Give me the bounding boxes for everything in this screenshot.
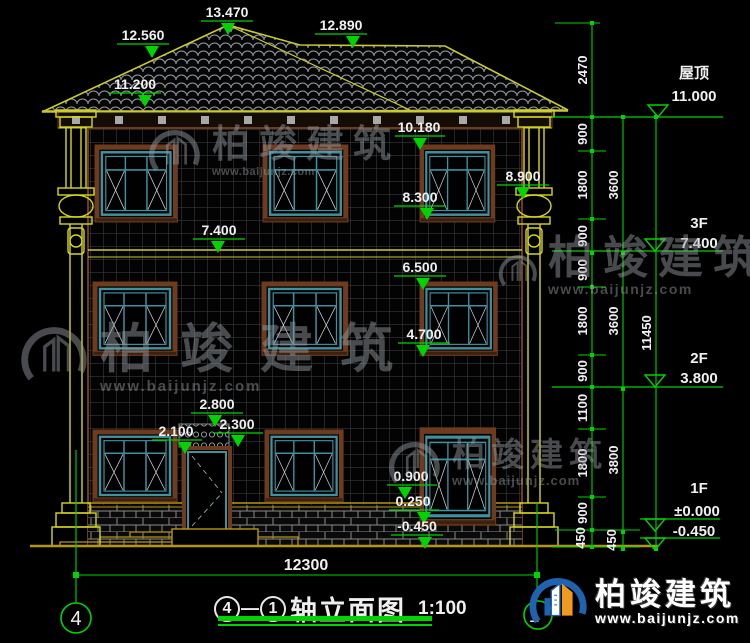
svg-text:12.560: 12.560 xyxy=(122,27,165,43)
level-marker: 12.890 xyxy=(315,17,367,48)
svg-text:3600: 3600 xyxy=(606,307,621,336)
svg-text:4: 4 xyxy=(70,608,81,630)
svg-text:1800: 1800 xyxy=(575,307,590,336)
brand-logo-icon xyxy=(528,570,590,634)
door-stoop xyxy=(172,529,258,546)
svg-text:2.800: 2.800 xyxy=(199,396,234,412)
chain-inner-labels: 2470 900 1800 900 900 1800 900 1100 1800… xyxy=(573,56,590,549)
svg-text:900: 900 xyxy=(575,225,590,247)
level-marker: 12.560 xyxy=(117,27,169,58)
svg-text:900: 900 xyxy=(575,123,590,145)
svg-text:2470: 2470 xyxy=(575,56,590,85)
svg-text:1100: 1100 xyxy=(575,394,590,422)
window-2f-left xyxy=(93,284,177,355)
svg-text:900: 900 xyxy=(575,502,590,524)
dimension-chains: 2470 900 1800 900 900 1800 900 1100 1800… xyxy=(552,21,658,551)
window-3f-middle xyxy=(263,147,348,222)
window-1f-right xyxy=(420,431,496,525)
svg-text:900: 900 xyxy=(575,259,590,281)
svg-text:11.200: 11.200 xyxy=(114,76,156,92)
drawing-layer: 13.470 12.560 12.890 11.200 10.180 8.900… xyxy=(0,0,750,643)
svg-text:3F: 3F xyxy=(690,215,708,232)
svg-text:0.900: 0.900 xyxy=(393,468,428,484)
svg-text:13.470: 13.470 xyxy=(206,4,249,20)
svg-text:450: 450 xyxy=(604,529,619,551)
svg-text:-0.450: -0.450 xyxy=(673,523,716,540)
svg-text:8.900: 8.900 xyxy=(505,168,540,184)
svg-text:11.000: 11.000 xyxy=(671,88,716,105)
svg-text:1800: 1800 xyxy=(575,171,590,200)
title-underline-thin xyxy=(218,624,432,626)
brand-logo: 柏竣建筑 www.baijunjz.com xyxy=(528,570,740,634)
svg-text:12.890: 12.890 xyxy=(320,17,363,33)
svg-text:1800: 1800 xyxy=(575,449,590,478)
door xyxy=(184,448,230,534)
svg-text:11450: 11450 xyxy=(639,315,654,350)
svg-text:0.250: 0.250 xyxy=(395,493,430,509)
title-underline-thick xyxy=(218,616,432,621)
svg-text:2.100: 2.100 xyxy=(158,423,193,439)
brand-logo-text: 柏竣建筑 xyxy=(595,579,740,610)
svg-text:6.500: 6.500 xyxy=(402,259,437,275)
svg-text:3.800: 3.800 xyxy=(680,370,718,387)
svg-text:10.180: 10.180 xyxy=(398,119,441,135)
svg-text:±0.000: ±0.000 xyxy=(674,503,720,520)
svg-text:3600: 3600 xyxy=(606,171,621,200)
window-2f-middle xyxy=(262,284,348,355)
svg-text:8.300: 8.300 xyxy=(402,189,437,205)
window-2f-right xyxy=(420,284,497,355)
chain-outer-labels: 11450 xyxy=(639,315,654,350)
svg-text:1F: 1F xyxy=(690,480,708,497)
bottom-dimension-text: 12300 xyxy=(284,557,329,574)
svg-text:-0.450: -0.450 xyxy=(397,518,437,534)
cornice xyxy=(58,112,552,128)
cad-elevation-drawing: 13.470 12.560 12.890 11.200 10.180 8.900… xyxy=(0,0,750,643)
window-1f-middle xyxy=(265,432,343,502)
svg-text:450: 450 xyxy=(573,527,588,549)
dimension-ticks xyxy=(590,21,658,551)
title-text: 轴立面图 xyxy=(290,589,406,628)
svg-text:2F: 2F xyxy=(690,350,708,367)
chain-middle-labels: 3600 3600 3800 450 xyxy=(604,171,621,551)
drawing-title: 4 — 1 轴立面图 1:100 xyxy=(214,589,467,628)
svg-text:4.700: 4.700 xyxy=(406,326,441,342)
svg-text:2.300: 2.300 xyxy=(219,416,254,432)
svg-text:7.400: 7.400 xyxy=(201,222,236,238)
svg-text:屋顶: 屋顶 xyxy=(679,65,709,82)
window-1f-left xyxy=(93,432,177,502)
window-3f-left xyxy=(95,147,177,222)
svg-text:7.400: 7.400 xyxy=(680,235,718,252)
svg-text:900: 900 xyxy=(575,360,590,382)
svg-text:3800: 3800 xyxy=(606,446,621,475)
brand-logo-url: www.baijunjz.com xyxy=(595,610,740,626)
